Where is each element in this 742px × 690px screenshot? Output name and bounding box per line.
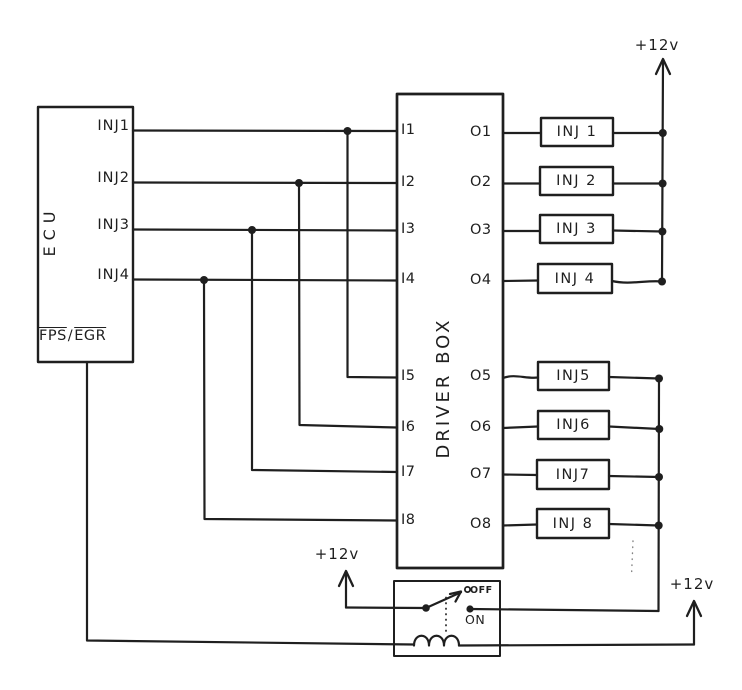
wire-inj3-branch-to-i7 [252, 231, 397, 473]
injector-2-label: INJ 2 [540, 167, 613, 195]
wire-inj1-to-i1 [133, 131, 397, 132]
wire-inj4-to-rail [612, 281, 662, 283]
wire-o5-to-inj5 [503, 376, 538, 378]
rail-switched-12v [659, 379, 660, 612]
injector-7-label: INJ7 [537, 460, 609, 489]
driver-box-label: DRIVER BOX [429, 308, 459, 468]
injector-3-label: INJ 3 [540, 215, 613, 243]
rail-dot-inj4 [658, 278, 666, 286]
rail-dot-inj6 [655, 425, 663, 433]
relay-common-dot [422, 604, 430, 612]
junction-inj1 [344, 127, 352, 135]
wire-12v-to-common [346, 608, 426, 609]
injector-8-label: INJ 8 [537, 509, 609, 538]
wire-o8-to-inj8 [503, 525, 537, 526]
driver-input-i8: I8 [401, 511, 431, 529]
stray-dotted-mark [632, 541, 634, 576]
ecu-pin-inj2: INJ2 [88, 169, 130, 187]
ecu-pin-inj4: INJ4 [88, 266, 130, 284]
rail-dot-inj3 [658, 228, 666, 236]
wire-o6-to-inj6 [503, 427, 538, 429]
rail-dot-inj8 [655, 522, 663, 530]
driver-output-o6: O6 [470, 418, 500, 436]
plus-12v-label-right: +12v [664, 575, 720, 593]
wire-inj8-to-rail [609, 524, 659, 526]
ecu-pin-inj3: INJ3 [88, 216, 130, 234]
ecu-pin-inj1: INJ1 [88, 117, 130, 135]
ecu-label: ECU [32, 199, 68, 263]
driver-input-i2: I2 [401, 173, 431, 191]
wire-inj7-to-rail [609, 476, 659, 477]
schematic-lines [0, 0, 742, 690]
hand-drawn-injector-wiring-diagram: ECU DRIVER BOX INJ1 INJ2 INJ3 INJ4 FPS/E… [0, 0, 742, 690]
wire-o7-to-inj7 [503, 475, 537, 476]
junction-inj4 [200, 276, 208, 284]
wire-on-contact-to-rail [470, 609, 659, 611]
junction-inj2 [295, 179, 303, 187]
wire-inj3-to-i3 [133, 230, 397, 231]
driver-output-o2: O2 [470, 173, 500, 191]
relay-coil [414, 636, 459, 646]
fps-label: FPS [39, 328, 67, 344]
injector-1-label: INJ 1 [541, 118, 613, 146]
wire-inj1-branch-to-i5 [348, 131, 398, 378]
injector-4-label: INJ 4 [538, 264, 612, 293]
rail-dot-inj5 [655, 375, 663, 383]
driver-input-i7: I7 [401, 463, 431, 481]
relay-off-label: OFF [470, 582, 493, 600]
driver-input-i5: I5 [401, 367, 431, 385]
rail-dot-inj2 [659, 180, 667, 188]
ecu-fps-egr-label: FPS/EGR [39, 327, 106, 345]
rail-dot-inj1 [659, 129, 667, 137]
egr-label: EGR [74, 328, 106, 344]
driver-output-o4: O4 [470, 271, 500, 289]
rail-top-12v [662, 60, 663, 282]
driver-output-o3: O3 [470, 221, 500, 239]
wire-inj3-to-rail [613, 231, 663, 232]
wire-o4-to-inj4 [503, 281, 538, 282]
driver-input-i6: I6 [401, 418, 431, 436]
wire-inj2-to-i2 [133, 183, 397, 184]
driver-output-o7: O7 [470, 465, 500, 483]
driver-input-i1: I1 [401, 121, 431, 139]
wire-fps-egr-to-coil [87, 362, 414, 645]
driver-output-o1: O1 [470, 123, 500, 141]
driver-output-o8: O8 [470, 515, 500, 533]
driver-output-o5: O5 [470, 367, 500, 385]
plus-12v-label-left: +12v [309, 545, 365, 563]
driver-input-i4: I4 [401, 270, 431, 288]
wire-coil-to-12v [459, 645, 694, 646]
rail-dot-inj7 [655, 473, 663, 481]
wire-inj6-to-rail [609, 427, 660, 430]
injector-5-label: INJ5 [538, 362, 609, 390]
wire-inj5-to-rail [609, 377, 659, 379]
wire-inj4-to-i4 [133, 280, 397, 281]
driver-input-i3: I3 [401, 220, 431, 238]
plus-12v-label-top: +12v [631, 36, 683, 54]
relay-on-label: ON [465, 611, 485, 629]
injector-6-label: INJ6 [538, 411, 609, 439]
junction-inj3 [248, 226, 256, 234]
